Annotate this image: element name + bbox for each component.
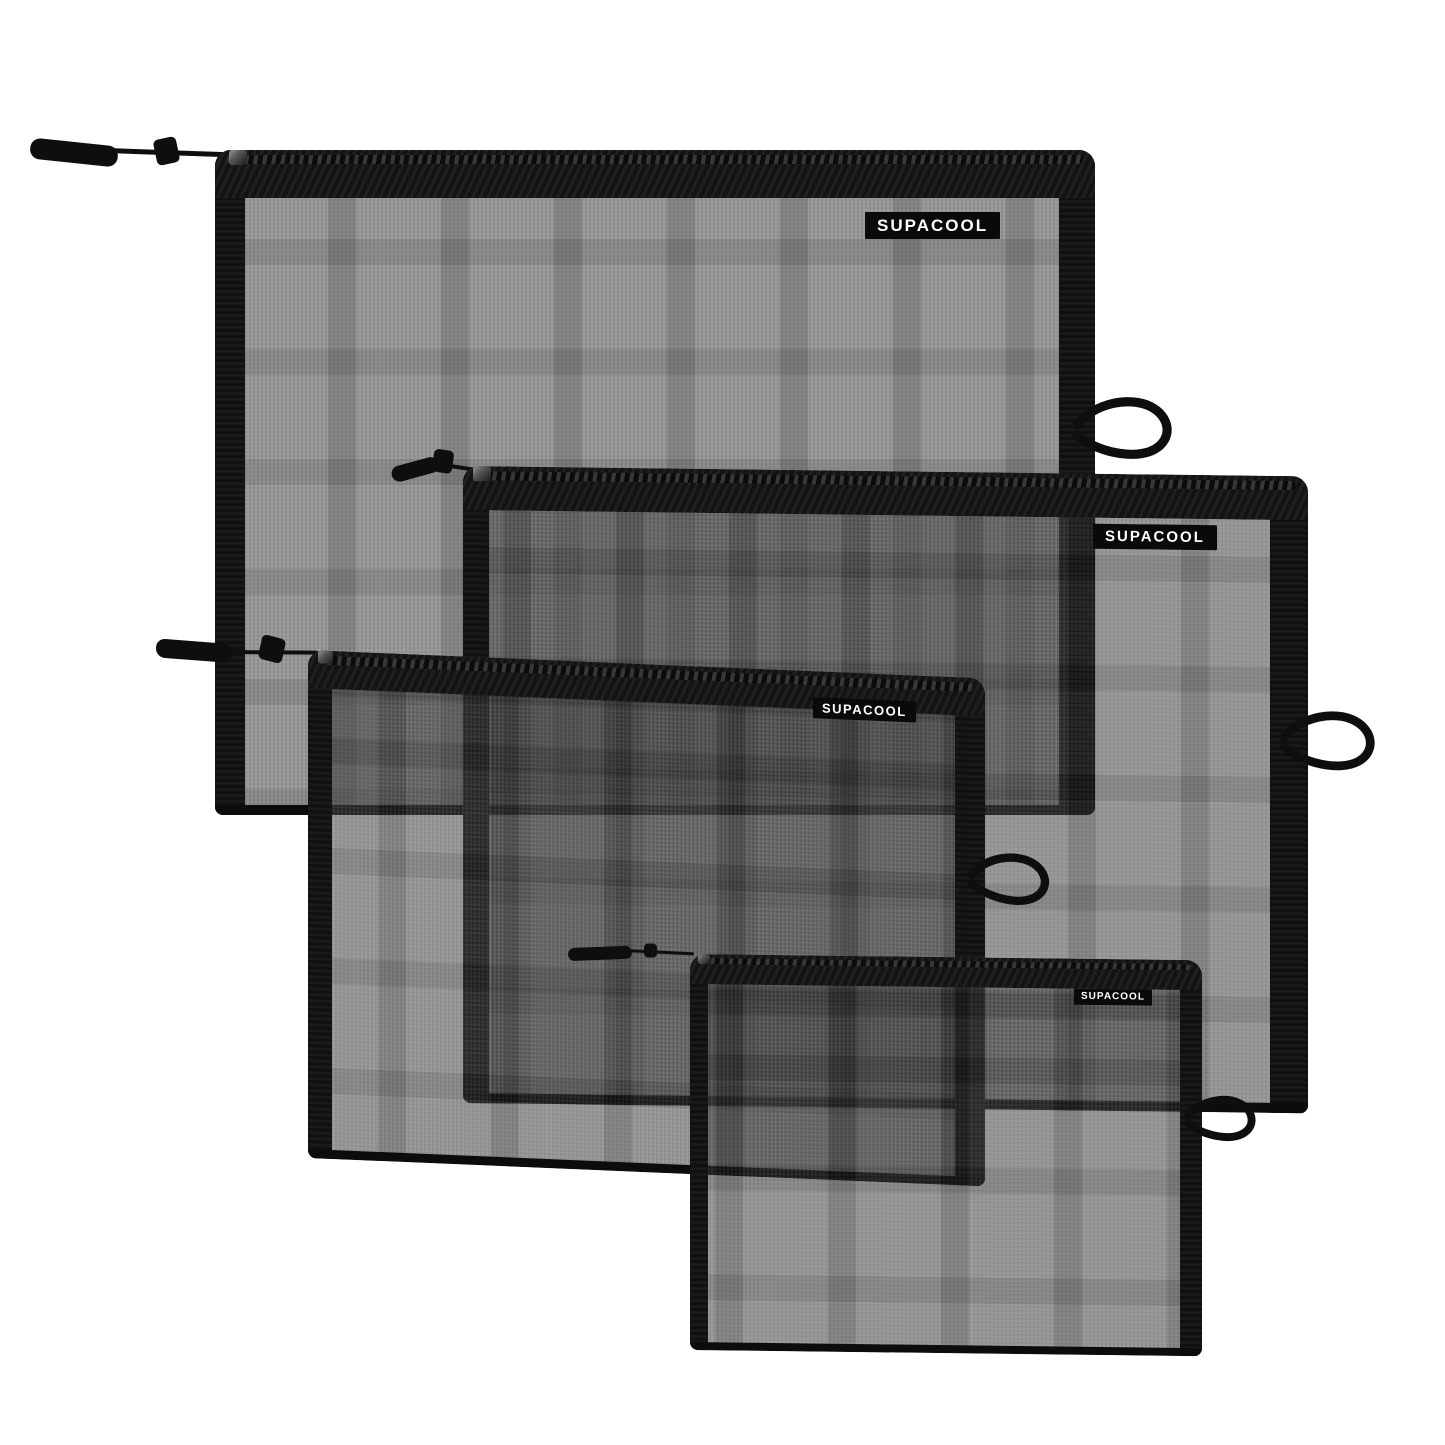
zipper-slider [473, 466, 491, 481]
product-photo: SUPACOOL SUPACOOL [0, 0, 1445, 1445]
zipper-band [215, 150, 1095, 198]
zipper-teeth [702, 958, 1190, 970]
hang-loop [970, 850, 1056, 914]
zipper-teeth [475, 471, 1296, 490]
right-trim [1180, 960, 1202, 1356]
left-trim [308, 650, 332, 1159]
brand-tag: SUPACOOL [1074, 989, 1152, 1006]
left-trim [215, 150, 245, 815]
brand-tag-label: SUPACOOL [822, 701, 907, 720]
zipper-slider [698, 954, 710, 964]
cord-lock-bead [153, 136, 181, 166]
brand-tag: SUPACOOL [1093, 524, 1217, 551]
left-trim [690, 954, 708, 1350]
hang-loop [1188, 1094, 1260, 1147]
zipper-teeth [227, 155, 1083, 164]
brand-tag: SUPACOOL [865, 212, 1000, 239]
right-trim [1270, 476, 1308, 1113]
zipper-pull-cord [30, 136, 240, 176]
cord-lock-bead [644, 943, 657, 957]
zipper-band [690, 954, 1202, 990]
zipper-pull-cord [568, 941, 704, 971]
brand-tag-label: SUPACOOL [1105, 528, 1205, 546]
cord-lock-bead [431, 448, 454, 474]
zipper-pull-cord [156, 632, 326, 675]
zipper-slider [318, 650, 333, 664]
zipper-pull-tab [568, 946, 633, 962]
brand-tag-label: SUPACOOL [877, 216, 988, 235]
mesh-panel [690, 954, 1202, 1356]
pouch-body: SUPACOOL [690, 954, 1202, 1356]
brand-tag-label: SUPACOOL [1081, 991, 1145, 1003]
zipper-slider [229, 150, 247, 165]
bag-small: SUPACOOL [690, 954, 1202, 1356]
brand-tag: SUPACOOL [813, 697, 916, 722]
hang-loop [1283, 708, 1383, 779]
cord-lock-bead [258, 634, 287, 664]
hang-loop [1077, 394, 1179, 468]
